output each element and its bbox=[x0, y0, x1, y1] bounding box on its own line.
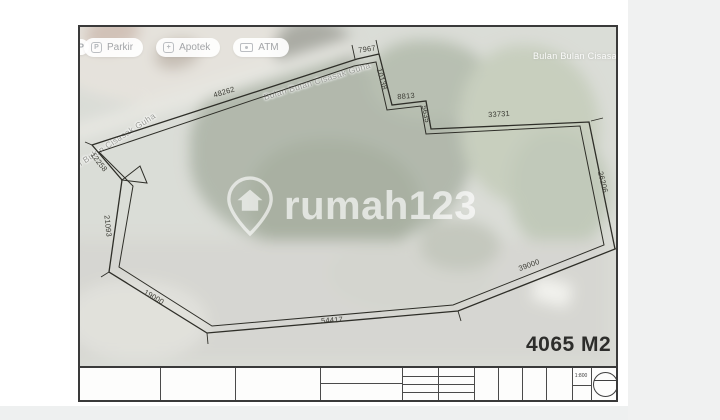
land-plot-outline bbox=[80, 27, 616, 368]
title-block-divider bbox=[522, 368, 523, 400]
title-block-divider bbox=[546, 368, 547, 400]
title-block: 1:800 bbox=[80, 366, 616, 400]
dimension-top-step-bottom: 8813 bbox=[397, 91, 415, 101]
dimension-north-east: 33731 bbox=[488, 109, 510, 119]
area-label: 4065 M2 bbox=[526, 333, 611, 357]
scale-label: 1:800 bbox=[575, 373, 588, 379]
page-background-right bbox=[628, 0, 720, 420]
title-block-divider bbox=[572, 368, 573, 400]
site-plan-sheet: P P Parkir + Apotek ATM Bulan Bulan Cisa… bbox=[78, 25, 618, 402]
page-background-bottom bbox=[0, 406, 628, 420]
title-block-divider bbox=[498, 368, 499, 400]
dimension-south: 54417 bbox=[321, 315, 343, 326]
title-block-line bbox=[402, 376, 474, 377]
title-block-divider bbox=[591, 368, 592, 400]
map-area: P P Parkir + Apotek ATM Bulan Bulan Cisa… bbox=[80, 27, 616, 368]
title-block-line bbox=[402, 384, 474, 385]
title-block-divider bbox=[474, 368, 475, 400]
title-block-line bbox=[320, 383, 402, 384]
north-symbol-line bbox=[594, 380, 617, 381]
title-block-divider bbox=[320, 368, 321, 400]
north-symbol-icon bbox=[593, 372, 618, 397]
title-block-divider bbox=[160, 368, 161, 400]
title-block-divider bbox=[235, 368, 236, 400]
title-block-line bbox=[402, 392, 474, 393]
title-block-line bbox=[572, 385, 591, 386]
